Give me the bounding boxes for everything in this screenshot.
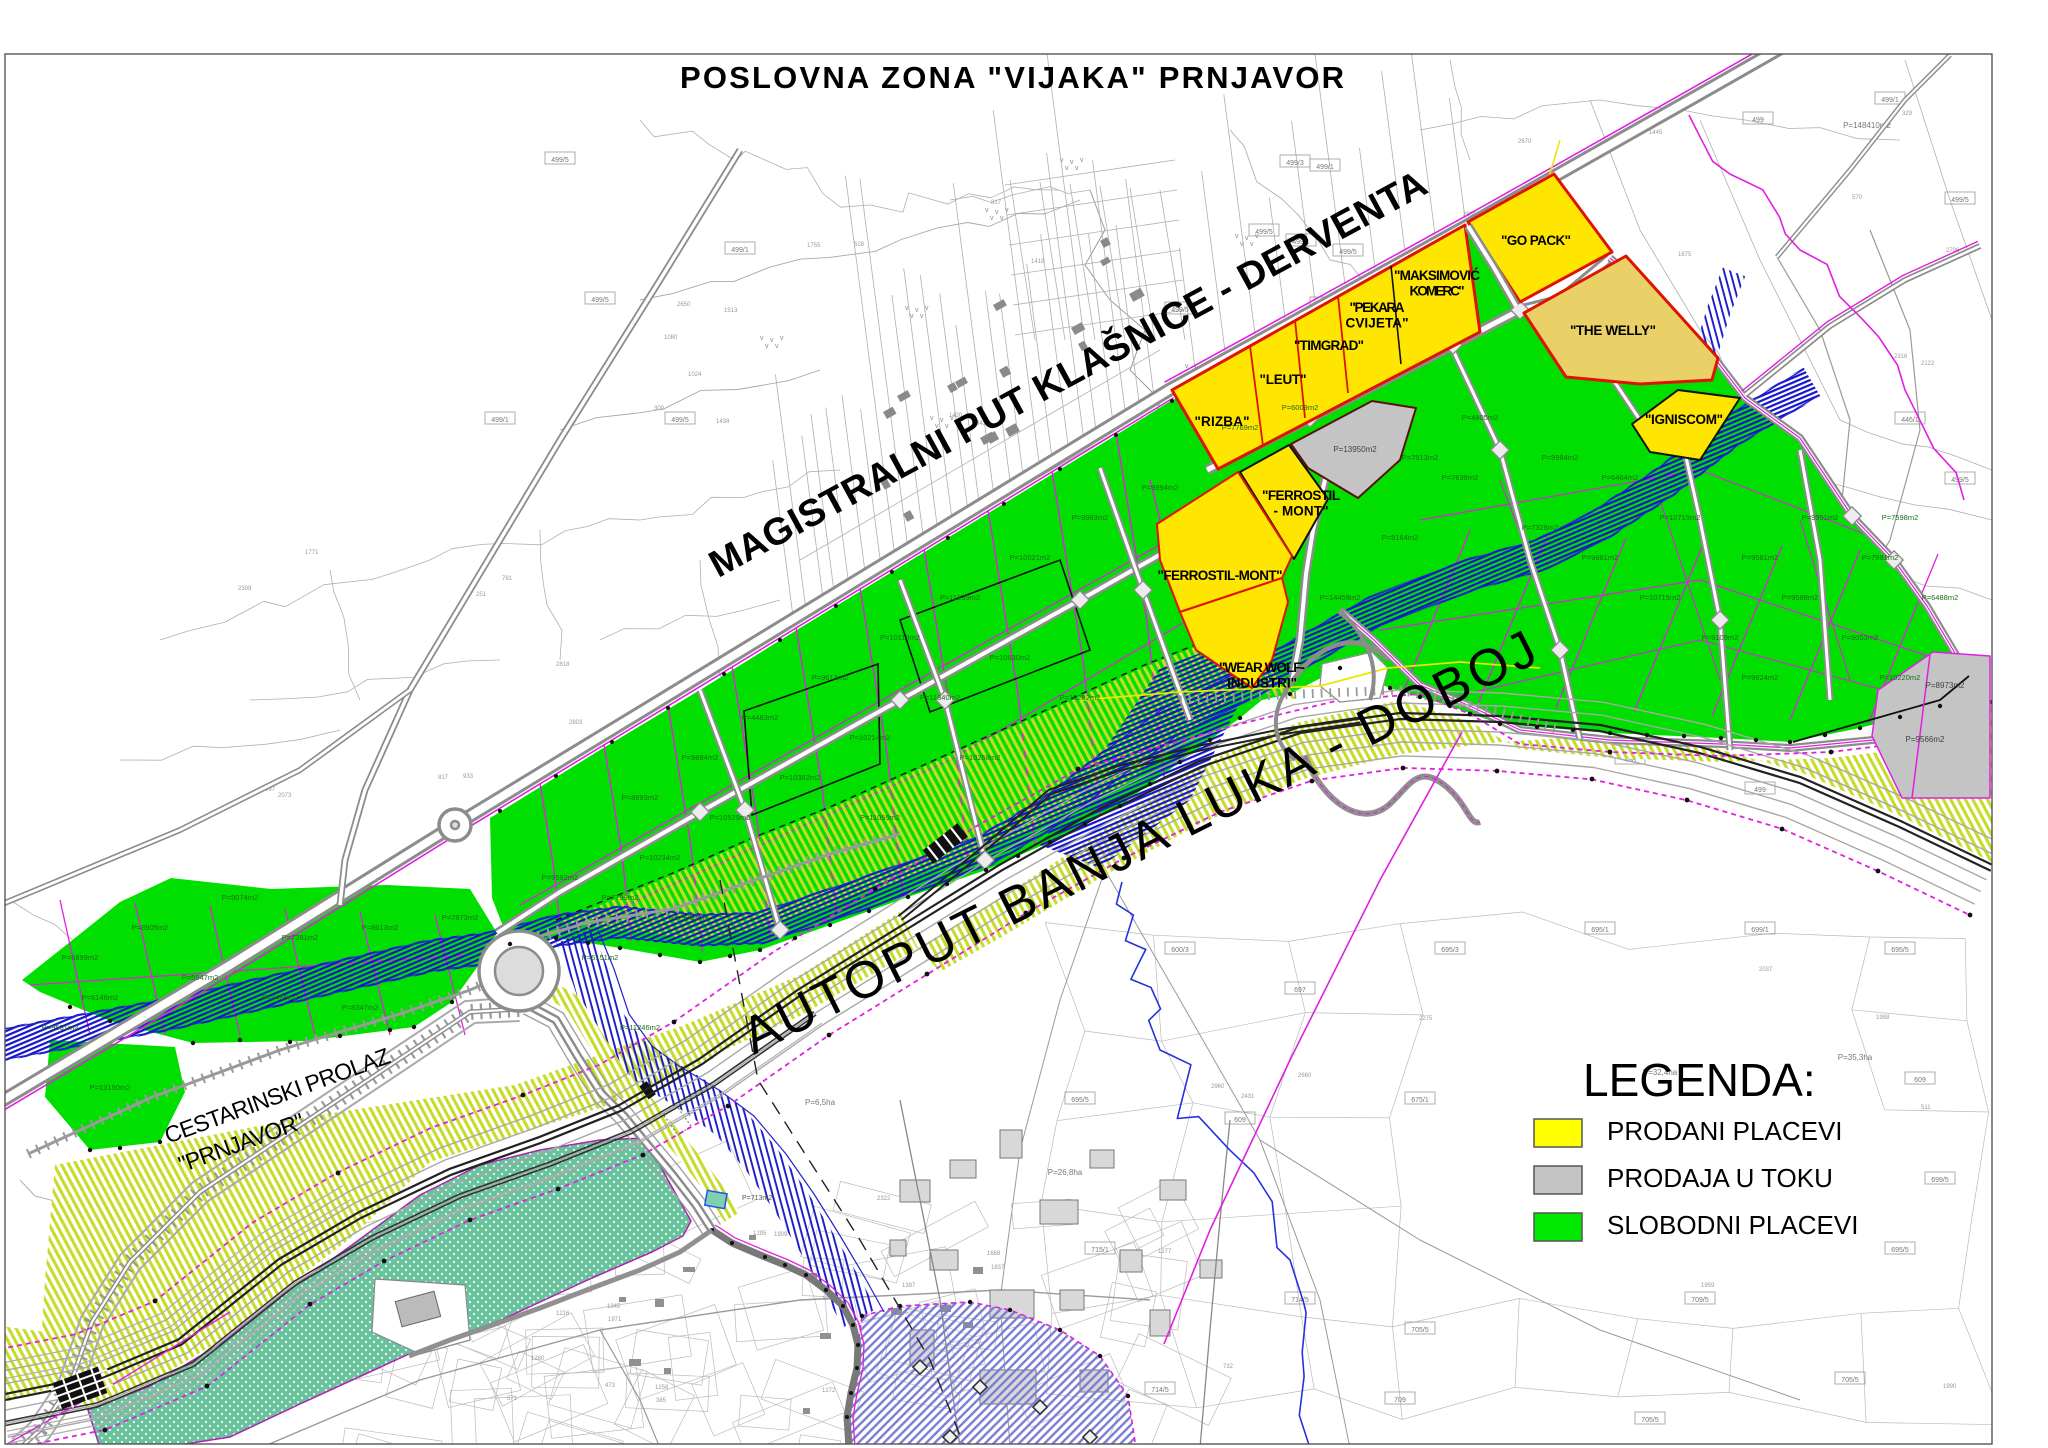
svg-text:v: v — [920, 313, 924, 320]
svg-text:P=6488m2: P=6488m2 — [1922, 593, 1959, 602]
svg-text:P=4805m2: P=4805m2 — [1462, 413, 1499, 422]
svg-text:"TIMGRAD": "TIMGRAD" — [1294, 338, 1364, 353]
svg-text:P=10119m2: P=10119m2 — [880, 633, 920, 642]
svg-text:P=9566m2: P=9566m2 — [1906, 735, 1945, 744]
svg-text:499/3: 499/3 — [1286, 160, 1304, 167]
svg-text:499/1: 499/1 — [491, 417, 509, 424]
svg-text:705/5: 705/5 — [1841, 1377, 1859, 1384]
svg-text:P=7873m2: P=7873m2 — [442, 913, 479, 922]
svg-text:1216: 1216 — [556, 1311, 570, 1317]
svg-text:300: 300 — [654, 406, 665, 412]
svg-text:695/5: 695/5 — [1891, 1247, 1909, 1254]
svg-text:2309: 2309 — [238, 586, 252, 592]
svg-text:1258: 1258 — [655, 1385, 669, 1391]
svg-text:714/5: 714/5 — [1151, 1387, 1169, 1394]
svg-text:2073: 2073 — [278, 793, 292, 799]
svg-text:528: 528 — [854, 242, 865, 248]
svg-text:1990: 1990 — [1943, 1384, 1957, 1390]
svg-text:P=9164m2: P=9164m2 — [1382, 533, 1419, 542]
svg-text:P=9994m2: P=9994m2 — [1142, 483, 1179, 492]
svg-text:v: v — [760, 335, 764, 342]
svg-text:1909: 1909 — [774, 1232, 788, 1238]
svg-text:P=713m2: P=713m2 — [742, 1195, 772, 1202]
svg-text:499/5: 499/5 — [551, 157, 569, 164]
svg-text:P=10220m2: P=10220m2 — [1880, 673, 1921, 682]
svg-text:P=11059m2: P=11059m2 — [860, 813, 900, 822]
svg-text:P=9881m2: P=9881m2 — [1582, 553, 1619, 562]
svg-text:499/5: 499/5 — [1255, 229, 1273, 236]
svg-text:1397: 1397 — [902, 1283, 916, 1289]
svg-text:695/3: 695/3 — [1441, 947, 1459, 954]
svg-text:1755: 1755 — [807, 243, 821, 249]
svg-text:v: v — [1005, 207, 1009, 214]
svg-text:499/1: 499/1 — [1881, 97, 1899, 104]
svg-text:P=7799m2: P=7799m2 — [602, 893, 639, 902]
svg-text:P=9074m2: P=9074m2 — [222, 893, 259, 902]
svg-text:1988: 1988 — [1876, 1015, 1890, 1021]
svg-text:v: v — [905, 305, 909, 312]
svg-text:695/5: 695/5 — [1071, 1097, 1089, 1104]
svg-text:v: v — [770, 337, 774, 344]
svg-text:1272: 1272 — [822, 1388, 836, 1394]
svg-text:v: v — [1235, 233, 1239, 240]
svg-text:385: 385 — [656, 1398, 667, 1404]
svg-text:609: 609 — [1914, 1077, 1926, 1084]
svg-text:705/5: 705/5 — [1641, 1417, 1659, 1424]
svg-text:P=8613m2: P=8613m2 — [362, 923, 399, 932]
svg-text:"WEAR WOLF-: "WEAR WOLF- — [1219, 660, 1305, 675]
svg-text:P=9109m2: P=9109m2 — [1702, 633, 1739, 642]
svg-text:P=10282m2: P=10282m2 — [1060, 693, 1101, 702]
svg-text:2322: 2322 — [877, 1196, 891, 1202]
svg-text:v: v — [930, 415, 934, 422]
svg-text:P=14458m2: P=14458m2 — [1320, 593, 1361, 602]
svg-text:P=13150m2: P=13150m2 — [90, 1083, 131, 1092]
svg-text:PRODAJA U TOKU: PRODAJA U TOKU — [1607, 1163, 1833, 1193]
svg-text:"IGNISCOM": "IGNISCOM" — [1645, 412, 1723, 427]
svg-text:705/5: 705/5 — [1411, 1327, 1429, 1334]
svg-text:v: v — [1065, 165, 1069, 172]
svg-text:709/5: 709/5 — [1691, 1297, 1709, 1304]
svg-text:P=7381m2: P=7381m2 — [282, 933, 319, 942]
svg-text:2275: 2275 — [1419, 1016, 1433, 1022]
svg-text:P=11239m2: P=11239m2 — [940, 593, 980, 602]
svg-text:1675: 1675 — [1678, 252, 1692, 258]
svg-text:P=6009m2: P=6009m2 — [1282, 403, 1319, 412]
svg-text:1024: 1024 — [688, 372, 702, 378]
svg-text:P=6464m2: P=6464m2 — [1602, 473, 1639, 482]
svg-text:P=8893m2: P=8893m2 — [622, 793, 659, 802]
svg-text:v: v — [990, 215, 994, 222]
svg-text:P=10715m2: P=10715m2 — [1660, 513, 1701, 522]
svg-text:2037: 2037 — [1759, 967, 1773, 973]
svg-text:715/1: 715/1 — [1091, 1247, 1109, 1254]
svg-text:P=10715m2: P=10715m2 — [1640, 593, 1681, 602]
svg-text:P=6151m2: P=6151m2 — [582, 953, 619, 962]
svg-text:P=8347m2: P=8347m2 — [342, 1003, 379, 1012]
svg-text:P=13950m2: P=13950m2 — [1333, 445, 1377, 454]
svg-text:499: 499 — [1754, 787, 1766, 794]
svg-text:"PEKARA: "PEKARA — [1350, 300, 1405, 315]
svg-text:P=9951m2: P=9951m2 — [1802, 513, 1839, 522]
svg-text:P=9581m2: P=9581m2 — [1742, 553, 1779, 562]
svg-text:P=11246m2: P=11246m2 — [620, 1023, 660, 1032]
svg-text:INDUSTRI": INDUSTRI" — [1227, 676, 1297, 691]
svg-text:499/5: 499/5 — [1951, 197, 1969, 204]
svg-text:v: v — [775, 343, 779, 350]
svg-text:P=7913m2: P=7913m2 — [1402, 453, 1439, 462]
svg-text:P=9984m2: P=9984m2 — [1542, 453, 1579, 462]
svg-text:"MAKSIMOVIĆ: "MAKSIMOVIĆ — [1394, 268, 1480, 283]
svg-text:P=6899m2: P=6899m2 — [62, 953, 99, 962]
svg-text:v: v — [995, 209, 999, 216]
svg-text:1668: 1668 — [987, 1251, 1001, 1257]
svg-text:933: 933 — [463, 774, 474, 780]
svg-text:P=10214m2: P=10214m2 — [850, 733, 891, 742]
svg-text:- MONT": - MONT" — [1274, 504, 1329, 519]
svg-text:2818: 2818 — [556, 662, 570, 668]
svg-text:SLOBODNI PLACEVI: SLOBODNI PLACEVI — [1607, 1210, 1858, 1240]
svg-text:732: 732 — [1223, 1364, 1234, 1370]
svg-text:v: v — [910, 313, 914, 320]
svg-text:473: 473 — [605, 1383, 616, 1389]
svg-text:v: v — [1075, 165, 1079, 172]
svg-text:2670: 2670 — [1518, 139, 1532, 145]
svg-text:1837: 1837 — [991, 1265, 1005, 1271]
svg-text:1277: 1277 — [1158, 1249, 1172, 1255]
svg-text:600/3: 600/3 — [1171, 947, 1189, 954]
svg-text:P=7598m2: P=7598m2 — [1882, 513, 1919, 522]
svg-text:"GO PACK": "GO PACK" — [1501, 233, 1571, 248]
svg-text:609: 609 — [1234, 1117, 1246, 1124]
svg-text:1438: 1438 — [716, 419, 730, 425]
svg-text:P=7328m2: P=7328m2 — [1522, 523, 1559, 532]
svg-text:499/5: 499/5 — [671, 417, 689, 424]
svg-text:2960: 2960 — [1211, 1084, 1225, 1090]
svg-text:P=8905m2: P=8905m2 — [132, 923, 169, 932]
svg-text:P=8973m2: P=8973m2 — [1926, 681, 1965, 690]
svg-text:499/1: 499/1 — [1316, 164, 1334, 171]
svg-text:1418: 1418 — [1031, 259, 1045, 265]
svg-text:P=11840m2: P=11840m2 — [920, 693, 960, 702]
svg-text:2431: 2431 — [1241, 1094, 1255, 1100]
svg-text:P=10234m2: P=10234m2 — [640, 853, 681, 862]
svg-text:499/5: 499/5 — [1951, 477, 1969, 484]
svg-text:251: 251 — [476, 592, 487, 598]
svg-text:817: 817 — [438, 775, 449, 781]
svg-text:v: v — [925, 305, 929, 312]
svg-text:"RIZBA": "RIZBA" — [1195, 414, 1250, 429]
svg-text:P=9613m2: P=9613m2 — [812, 673, 849, 682]
svg-text:1959: 1959 — [1701, 1283, 1715, 1289]
svg-text:P=9853m2: P=9853m2 — [672, 913, 709, 922]
svg-text:1513: 1513 — [724, 308, 738, 314]
svg-text:P=26,8ha: P=26,8ha — [1048, 1168, 1083, 1177]
svg-text:P=10021m2: P=10021m2 — [1010, 553, 1051, 562]
svg-text:P=6,5ha: P=6,5ha — [805, 1098, 836, 1107]
svg-text:"FERROSTIL-MONT": "FERROSTIL-MONT" — [1158, 568, 1283, 583]
svg-text:P=9592m2: P=9592m2 — [542, 873, 579, 882]
svg-text:1080: 1080 — [664, 335, 678, 341]
svg-text:P=5947m2: P=5947m2 — [182, 973, 219, 982]
svg-text:LEGENDA:: LEGENDA: — [1583, 1054, 1816, 1106]
svg-text:P=9884m2: P=9884m2 — [682, 753, 719, 762]
svg-text:1345: 1345 — [607, 1304, 621, 1310]
svg-text:675/1: 675/1 — [1411, 1097, 1429, 1104]
svg-text:714/5: 714/5 — [1291, 1297, 1309, 1304]
svg-text:2660: 2660 — [1298, 1073, 1312, 1079]
svg-text:PRODANI PLACEVI: PRODANI PLACEVI — [1607, 1116, 1843, 1146]
svg-text:"LEUT": "LEUT" — [1260, 372, 1307, 387]
svg-text:P=7981m2: P=7981m2 — [1862, 553, 1899, 562]
svg-text:2122: 2122 — [1921, 361, 1935, 367]
svg-text:P=9983m2: P=9983m2 — [1072, 513, 1109, 522]
svg-text:v: v — [1245, 235, 1249, 242]
svg-text:v: v — [780, 335, 784, 342]
svg-text:1771: 1771 — [305, 550, 319, 556]
svg-text:"THE WELLY": "THE WELLY" — [1570, 323, 1656, 338]
svg-text:329: 329 — [1902, 111, 1913, 117]
svg-text:v: v — [765, 343, 769, 350]
svg-text:499: 499 — [1752, 117, 1764, 124]
svg-text:699/1: 699/1 — [1751, 927, 1769, 934]
svg-text:817: 817 — [991, 200, 1002, 206]
svg-text:P=7639m2: P=7639m2 — [1442, 473, 1479, 482]
svg-text:1445: 1445 — [1649, 130, 1663, 136]
svg-text:1295: 1295 — [753, 1231, 767, 1237]
svg-text:P=10630m2: P=10630m2 — [990, 653, 1031, 662]
svg-text:499/1: 499/1 — [731, 247, 749, 254]
svg-text:v: v — [1250, 241, 1254, 248]
svg-text:709: 709 — [1394, 1397, 1406, 1404]
svg-text:P=10382m2: P=10382m2 — [780, 773, 821, 782]
svg-text:CVIJETA": CVIJETA" — [1346, 316, 1409, 331]
svg-text:v: v — [915, 307, 919, 314]
svg-text:1280: 1280 — [531, 1356, 545, 1362]
svg-text:511: 511 — [1921, 1105, 1931, 1111]
svg-text:2650: 2650 — [677, 302, 691, 308]
svg-text:695/5: 695/5 — [1891, 947, 1909, 954]
svg-text:v: v — [1060, 157, 1064, 164]
svg-text:499/5: 499/5 — [591, 297, 609, 304]
svg-text:v: v — [1080, 157, 1084, 164]
svg-text:2316: 2316 — [1894, 354, 1908, 360]
svg-text:781: 781 — [502, 576, 513, 582]
svg-text:P=9531m2: P=9531m2 — [42, 1023, 79, 1032]
svg-text:P=9053m2: P=9053m2 — [1842, 633, 1879, 642]
svg-text:P=9824m2: P=9824m2 — [1742, 673, 1779, 682]
svg-text:1971: 1971 — [608, 1317, 622, 1323]
svg-text:2803: 2803 — [569, 720, 583, 726]
svg-text:P=35,3ha: P=35,3ha — [1838, 1053, 1873, 1062]
svg-text:"FERROSTIL: "FERROSTIL — [1262, 488, 1340, 503]
svg-text:699/5: 699/5 — [1931, 1177, 1949, 1184]
svg-text:697: 697 — [1294, 987, 1306, 994]
svg-text:P=10258m2: P=10258m2 — [960, 753, 1001, 762]
svg-text:499/5: 499/5 — [1339, 249, 1357, 256]
svg-text:v: v — [1070, 159, 1074, 166]
svg-text:P=9465m2: P=9465m2 — [262, 993, 299, 1002]
svg-text:446/1: 446/1 — [1901, 417, 1919, 424]
svg-text:P=4483m2: P=4483m2 — [742, 713, 779, 722]
svg-text:v: v — [1240, 241, 1244, 248]
svg-text:KOMERC": KOMERC" — [1410, 284, 1465, 299]
svg-text:P=9588m2: P=9588m2 — [1782, 593, 1819, 602]
svg-text:v: v — [1000, 215, 1004, 222]
svg-text:571: 571 — [507, 1396, 518, 1402]
svg-text:P=6146m2: P=6146m2 — [82, 993, 119, 1002]
svg-text:570: 570 — [1852, 195, 1863, 201]
svg-text:695/1: 695/1 — [1591, 927, 1609, 934]
svg-text:POSLOVNA ZONA "VIJAKA" PRNJAVO: POSLOVNA ZONA "VIJAKA" PRNJAVOR — [680, 60, 1344, 95]
svg-text:v: v — [985, 207, 989, 214]
svg-text:P=10529m2: P=10529m2 — [710, 813, 751, 822]
